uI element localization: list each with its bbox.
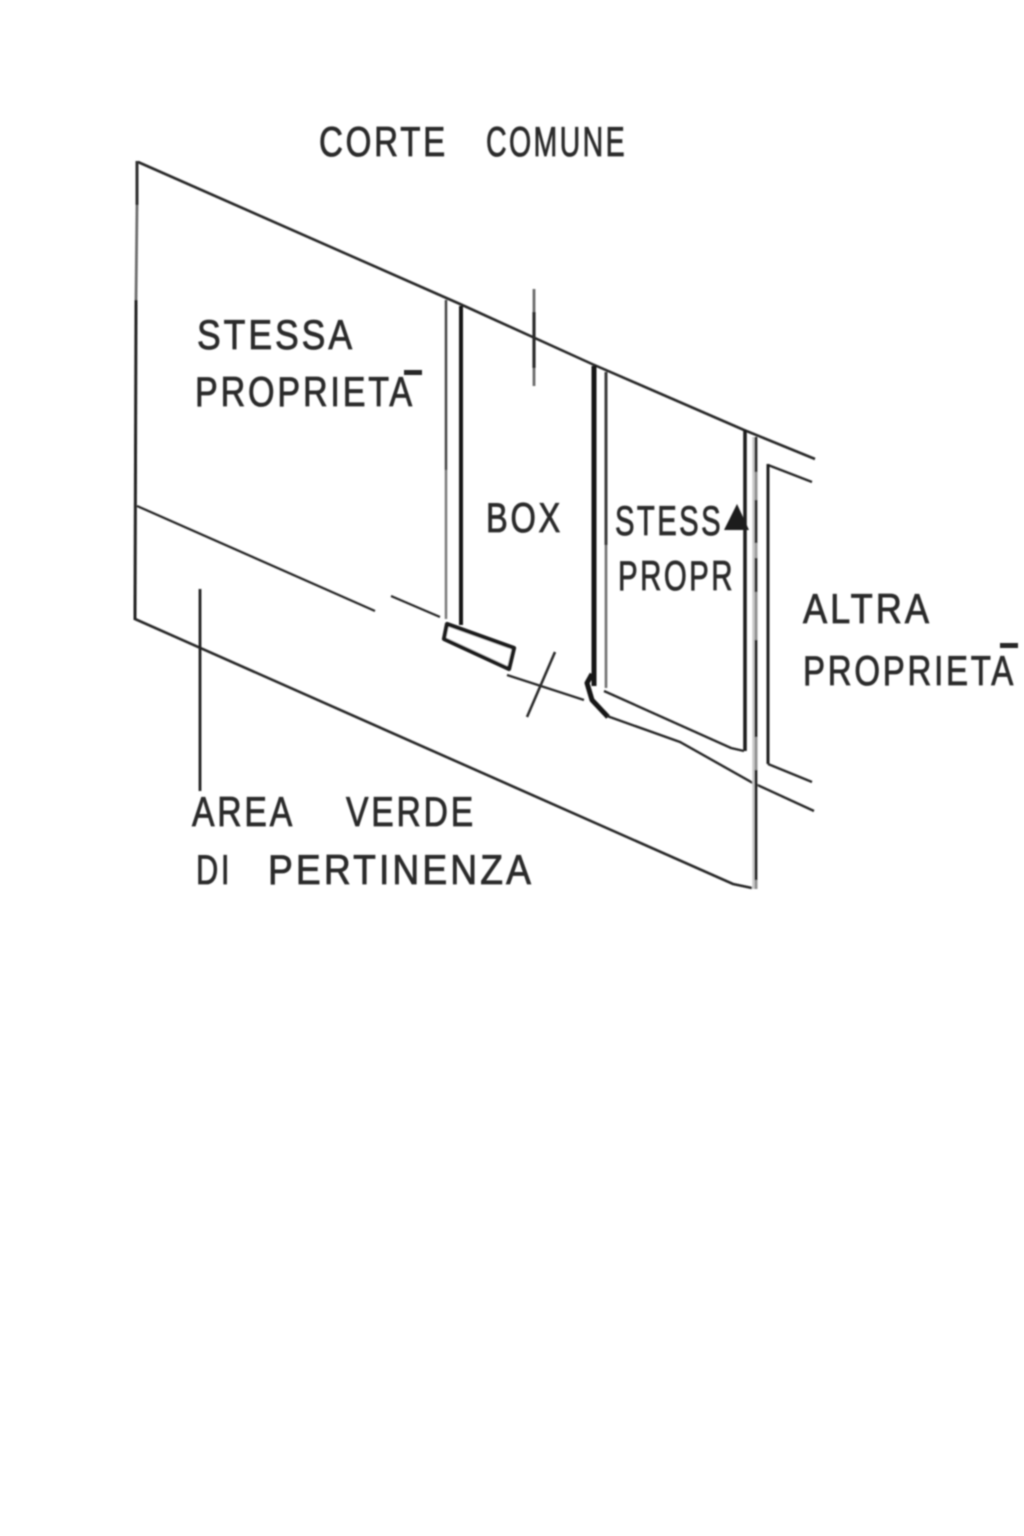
svg-text:STESS: STESS — [615, 497, 723, 544]
svg-text:VERDE: VERDE — [346, 788, 476, 835]
svg-text:PERTINENZA: PERTINENZA — [268, 846, 534, 893]
svg-text:COMUNE: COMUNE — [486, 118, 627, 165]
svg-text:PROPRIETA: PROPRIETA — [803, 647, 1016, 694]
svg-text:AREA: AREA — [192, 788, 295, 835]
svg-text:DI: DI — [196, 846, 232, 893]
svg-text:PROPR: PROPR — [618, 552, 735, 599]
svg-text:CORTE: CORTE — [319, 118, 448, 165]
svg-text:PROPRIETA: PROPRIETA — [195, 368, 415, 415]
svg-text:BOX: BOX — [486, 494, 563, 541]
svg-text:STESSA: STESSA — [197, 311, 355, 358]
svg-text:ALTRA: ALTRA — [803, 585, 932, 632]
